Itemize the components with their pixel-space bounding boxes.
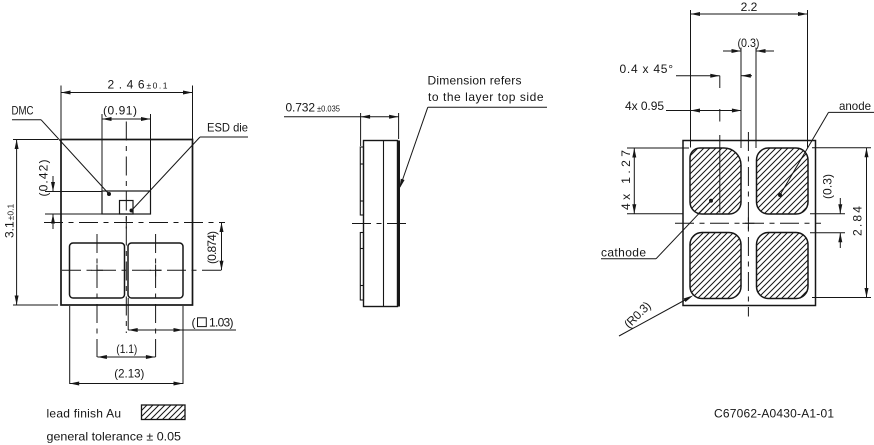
svg-text:anode: anode — [839, 99, 871, 113]
svg-text:±0.1: ±0.1 — [147, 81, 168, 91]
svg-text:4x 0.95: 4x 0.95 — [625, 99, 664, 113]
svg-text:(0.3): (0.3) — [821, 174, 835, 199]
svg-text:Dimension refers: Dimension refers — [428, 74, 522, 88]
svg-text:(0.3): (0.3) — [738, 36, 760, 50]
svg-text:0.4 x 45°: 0.4 x 45° — [620, 62, 674, 76]
svg-text:(0.91): (0.91) — [103, 104, 137, 118]
svg-text:2.84: 2.84 — [851, 206, 865, 236]
svg-text:(0.874): (0.874) — [205, 231, 219, 264]
svg-text:0.732: 0.732 — [286, 101, 316, 115]
svg-text:(: ( — [192, 316, 196, 330]
svg-text:2.46: 2.46 — [108, 78, 145, 92]
svg-text:cathode: cathode — [601, 246, 646, 260]
svg-text:C67062-A0430-A1-01: C67062-A0430-A1-01 — [714, 407, 834, 421]
svg-text:1.03): 1.03) — [209, 316, 234, 330]
svg-text:(0.42): (0.42) — [37, 160, 51, 197]
svg-text:±0.035: ±0.035 — [317, 105, 341, 114]
svg-text:ESD die: ESD die — [207, 121, 248, 135]
svg-text:general tolerance ± 0.05: general tolerance ± 0.05 — [47, 430, 182, 444]
svg-text:(2.13): (2.13) — [114, 367, 144, 381]
svg-text:to the layer top side: to the layer top side — [428, 90, 544, 104]
svg-text:lead finish Au: lead finish Au — [47, 407, 122, 421]
svg-text:2.2: 2.2 — [741, 0, 758, 14]
svg-text:DMC: DMC — [12, 104, 34, 118]
svg-text:(1.1): (1.1) — [116, 342, 137, 356]
svg-text:3.1±0.1: 3.1±0.1 — [3, 204, 17, 238]
